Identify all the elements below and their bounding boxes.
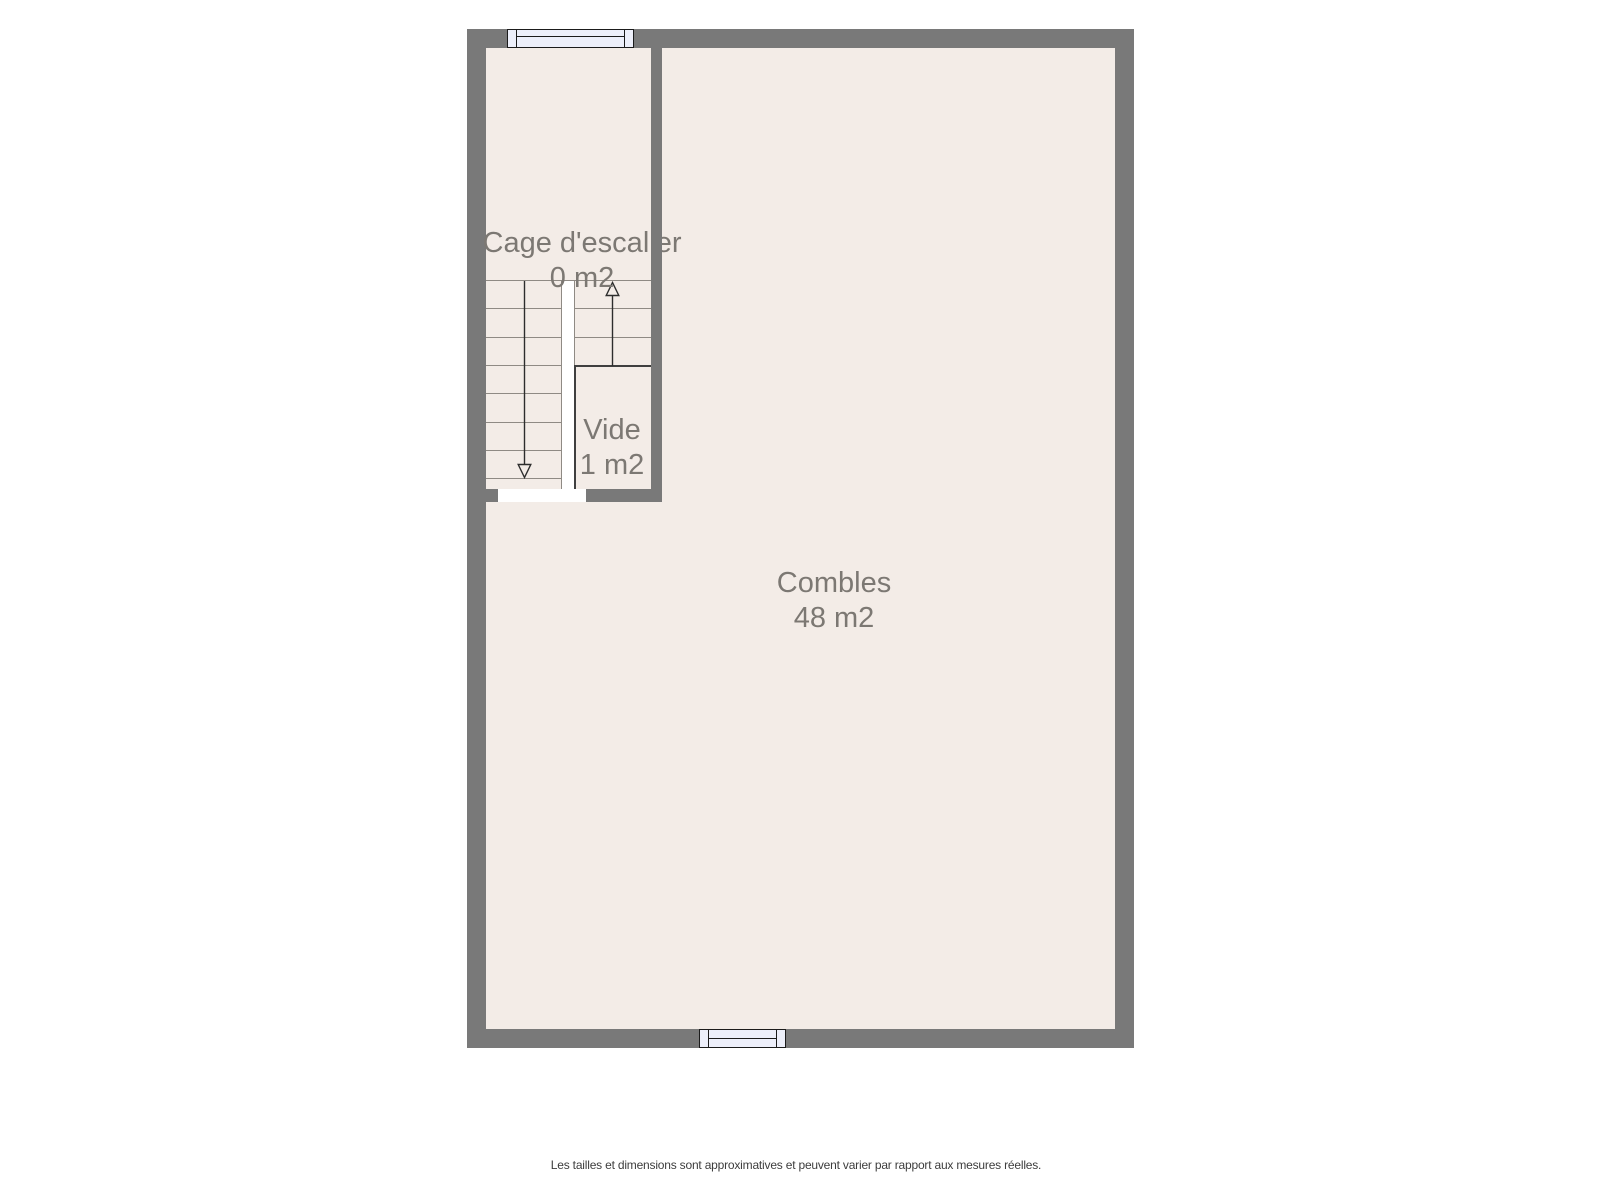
window-icon-top — [507, 29, 634, 48]
wall-opening — [498, 489, 586, 502]
window-end-cap — [508, 30, 517, 47]
room-label-combles: Combles 48 m2 — [777, 566, 891, 636]
room-name: Combles — [777, 566, 891, 601]
window-icon-bottom — [699, 1029, 786, 1048]
disclaimer-text: Les tailles et dimensions sont approxima… — [551, 1158, 1041, 1172]
cage-bottom-wall-left — [486, 489, 498, 502]
room-area: 48 m2 — [777, 601, 891, 636]
window-end-cap — [624, 30, 633, 47]
room-name: Vide — [580, 413, 644, 448]
stair-center-gap — [562, 281, 574, 502]
floor-area — [486, 48, 1115, 1029]
window-divider — [708, 1038, 777, 1040]
page: Cage d'escalier 0 m2 Vide 1 m2 Combles 4… — [0, 0, 1600, 1200]
floor-plan: Cage d'escalier 0 m2 Vide 1 m2 Combles 4… — [0, 0, 1600, 1200]
room-label-vide: Vide 1 m2 — [580, 413, 644, 483]
stairs-down-arrow-icon — [517, 281, 532, 479]
room-area: 1 m2 — [580, 448, 644, 483]
window-end-cap — [776, 1030, 785, 1047]
window-divider — [516, 36, 625, 38]
cage-bottom-wall-right — [586, 489, 662, 502]
interior-wall-vertical — [651, 48, 662, 502]
